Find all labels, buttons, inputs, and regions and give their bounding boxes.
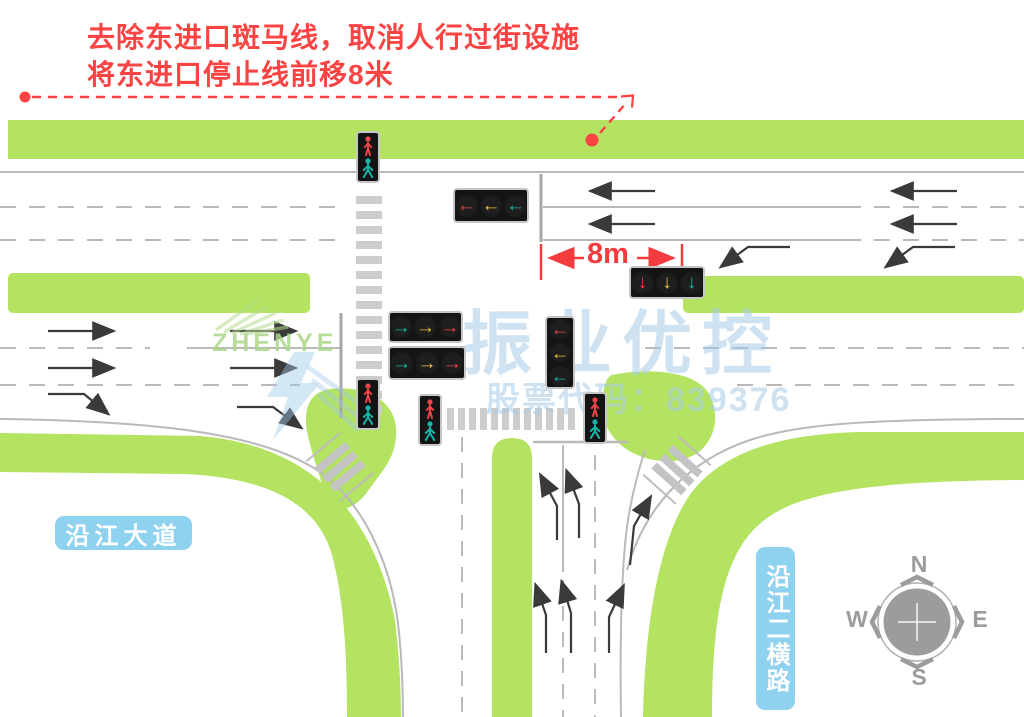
green-walking-person-icon [360,405,376,425]
signal-west-approach-row-2: → → → [388,346,466,380]
watermark-logo-text: ZHENYE [212,329,337,358]
pedestrian-signal-south-crosswalk-east [583,392,607,444]
annotation-line-1: 去除东进口斑马线，取消人行过街设施 [87,16,580,56]
green-walking-person-icon [422,421,438,441]
traffic-intersection-diagram: ZHENYE 振业优控 股票代码：839376 去除东进口斑马线，取消人行过街设… [0,0,1024,717]
watermark-stock-code-text: 股票代码：839376 [486,372,791,421]
red-standing-person-icon [360,383,376,403]
compass-west-label: W [843,606,871,633]
red-right-arrow-icon: → [439,315,461,339]
compass-north-chevron [901,577,933,585]
compass-south-label: S [905,664,933,691]
compass-north-label: N [905,551,933,578]
green-down-arrow-icon: ↓ [680,271,703,295]
annotation-line-2: 将东进口停止线前移8米 [87,53,394,93]
green-right-arrow-icon: → [390,315,412,339]
pedestrian-signal-north [356,131,380,183]
compass-east-chevron [954,606,962,638]
signal-east-approach-through: ↓ ↓ ↓ [629,266,705,299]
red-left-arrow-icon: ← [455,194,478,218]
yellow-left-arrow-icon: ← [549,342,571,364]
green-walking-person-icon [587,419,603,439]
compass-rose [872,577,962,667]
pedestrian-signal-south-crosswalk-west [418,394,442,446]
compass-east-label: E [966,606,994,633]
red-left-arrow-icon: ← [549,318,571,340]
yellow-right-arrow-icon: → [415,351,438,375]
red-down-arrow-icon: ↓ [631,271,654,295]
yellow-left-arrow-icon: ← [480,194,503,218]
road-badge-yanjiang-second-road: 沿江二横路 [756,547,795,710]
south-road-east-curb-line [621,450,645,717]
dimension-8m-label: 8m [587,238,629,271]
yellow-right-arrow-icon: → [414,315,436,339]
north-green-belt [8,120,1024,159]
signal-west-approach-row-1: → → → [388,311,463,343]
yellow-down-arrow-icon: ↓ [656,271,679,295]
compass-west-chevron [872,606,880,638]
red-standing-person-icon [587,397,603,417]
pedestrian-signal-southwest-island [356,378,380,430]
red-standing-person-icon [360,136,376,156]
green-walking-person-icon [360,158,376,178]
green-left-arrow-icon: ← [504,194,527,218]
south-road-median-green [492,438,532,717]
southeast-corner-green-band [643,432,1024,717]
green-left-arrow-icon: ← [549,365,571,387]
red-right-arrow-icon: → [441,351,464,375]
signal-east-approach-left-turn: ← ← ← [453,188,529,223]
signal-south-road-left-turn: ← ← ← [545,316,575,389]
road-badge-yanjiang-avenue: 沿江大道 [55,516,192,550]
red-standing-person-icon [422,399,438,419]
green-right-arrow-icon: → [390,351,413,375]
